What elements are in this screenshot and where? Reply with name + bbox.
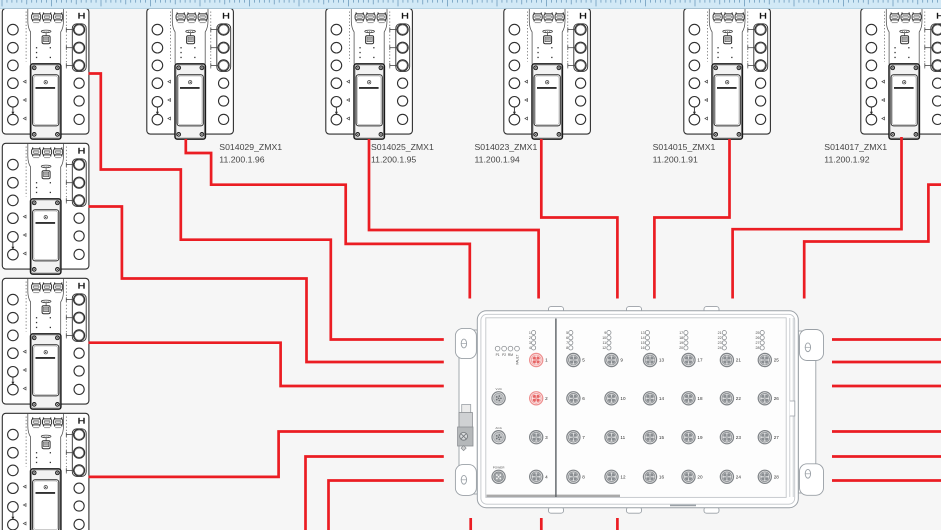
svg-text:FAULT: FAULT xyxy=(516,354,520,364)
svg-text:4: 4 xyxy=(545,475,548,480)
svg-text:21: 21 xyxy=(736,358,742,363)
svg-text:11.200.1.96: 11.200.1.96 xyxy=(219,155,264,165)
svg-text:27: 27 xyxy=(756,341,760,345)
svg-text:ACA: ACA xyxy=(495,426,502,430)
svg-text:S014015_ZMX1: S014015_ZMX1 xyxy=(653,142,716,152)
svg-text:26: 26 xyxy=(756,336,760,340)
svg-text:5: 5 xyxy=(582,358,585,363)
svg-text:6: 6 xyxy=(582,396,585,401)
svg-text:1: 1 xyxy=(545,358,548,363)
svg-text:10: 10 xyxy=(602,336,606,340)
svg-text:17: 17 xyxy=(697,358,703,363)
svg-text:24: 24 xyxy=(718,346,722,350)
svg-text:1: 1 xyxy=(529,331,531,335)
svg-text:8: 8 xyxy=(582,475,585,480)
svg-text:28: 28 xyxy=(774,475,780,480)
svg-text:11: 11 xyxy=(620,435,625,440)
svg-text:3: 3 xyxy=(529,341,531,345)
svg-text:7: 7 xyxy=(566,341,568,345)
svg-text:13: 13 xyxy=(659,358,665,363)
svg-text:9: 9 xyxy=(604,331,606,335)
svg-text:16: 16 xyxy=(641,346,645,350)
svg-text:26: 26 xyxy=(774,396,780,401)
svg-text:2: 2 xyxy=(545,396,548,401)
svg-text:2: 2 xyxy=(529,336,531,340)
svg-text:18: 18 xyxy=(697,396,703,401)
svg-text:S014023_ZMX1: S014023_ZMX1 xyxy=(475,142,538,152)
svg-text:17: 17 xyxy=(679,331,683,335)
svg-text:25: 25 xyxy=(774,358,780,363)
svg-text:20: 20 xyxy=(679,346,683,350)
svg-text:21: 21 xyxy=(718,331,722,335)
svg-text:19: 19 xyxy=(697,435,703,440)
svg-text:9: 9 xyxy=(620,358,623,363)
svg-text:RM: RM xyxy=(508,353,513,357)
svg-text:11: 11 xyxy=(602,341,606,345)
svg-text:11.200.1.92: 11.200.1.92 xyxy=(824,155,869,165)
svg-text:27: 27 xyxy=(774,435,780,440)
svg-text:19: 19 xyxy=(679,341,683,345)
svg-text:22: 22 xyxy=(718,336,722,340)
svg-text:S014029_ZMX1: S014029_ZMX1 xyxy=(219,142,282,152)
svg-text:13: 13 xyxy=(641,331,645,335)
svg-text:P1: P1 xyxy=(496,353,500,357)
svg-text:7: 7 xyxy=(582,435,585,440)
svg-text:15: 15 xyxy=(641,341,645,345)
svg-text:11.200.1.94: 11.200.1.94 xyxy=(475,155,520,165)
svg-text:5: 5 xyxy=(566,331,568,335)
svg-text:6: 6 xyxy=(566,336,568,340)
svg-text:V.24: V.24 xyxy=(496,387,502,391)
svg-text:POWER: POWER xyxy=(493,466,505,470)
svg-text:8: 8 xyxy=(566,346,568,350)
svg-text:10: 10 xyxy=(620,396,626,401)
svg-text:4: 4 xyxy=(529,346,531,350)
svg-text:23: 23 xyxy=(736,435,742,440)
svg-text:23: 23 xyxy=(718,341,722,345)
svg-text:3: 3 xyxy=(545,435,548,440)
svg-text:14: 14 xyxy=(659,396,665,401)
svg-text:11.200.1.91: 11.200.1.91 xyxy=(653,155,698,165)
svg-text:25: 25 xyxy=(756,331,760,335)
svg-text:24: 24 xyxy=(736,475,742,480)
svg-text:12: 12 xyxy=(620,475,626,480)
svg-text:14: 14 xyxy=(641,336,645,340)
svg-text:11.200.1.95: 11.200.1.95 xyxy=(371,155,416,165)
svg-text:P2: P2 xyxy=(502,353,506,357)
svg-text:S014017_ZMX1: S014017_ZMX1 xyxy=(824,142,887,152)
svg-text:S014025_ZMX1: S014025_ZMX1 xyxy=(371,142,434,152)
svg-text:18: 18 xyxy=(679,336,683,340)
svg-text:20: 20 xyxy=(697,475,703,480)
svg-text:28: 28 xyxy=(756,346,760,350)
svg-text:12: 12 xyxy=(602,346,606,350)
svg-text:16: 16 xyxy=(659,475,665,480)
svg-text:15: 15 xyxy=(659,435,665,440)
svg-text:22: 22 xyxy=(736,396,742,401)
